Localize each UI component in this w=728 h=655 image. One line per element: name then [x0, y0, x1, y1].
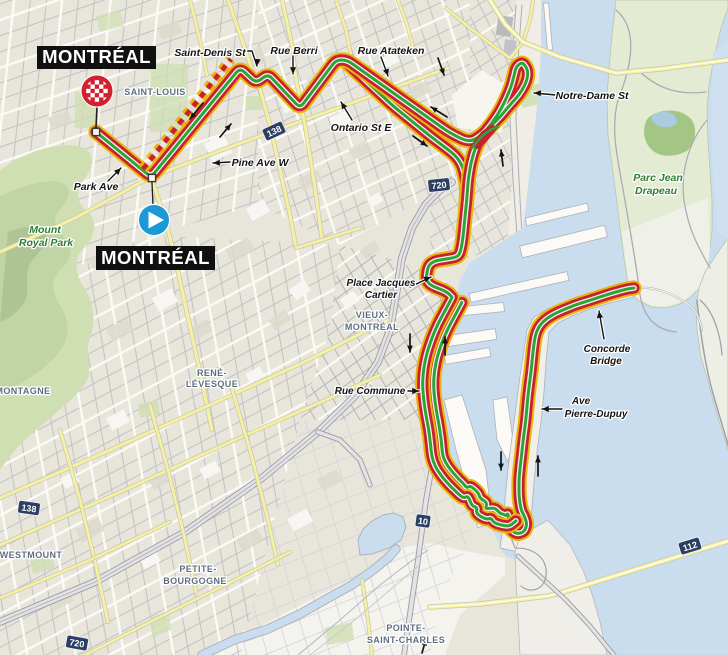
- svg-text:BOURGOGNE: BOURGOGNE: [163, 576, 227, 586]
- svg-text:SAINT-CHARLES: SAINT-CHARLES: [367, 635, 445, 645]
- svg-text:Concorde: Concorde: [584, 344, 631, 355]
- svg-text:Drapeau: Drapeau: [635, 185, 678, 197]
- svg-text:Rue Berri: Rue Berri: [270, 45, 318, 57]
- svg-text:MONTRÉAL: MONTRÉAL: [345, 322, 399, 332]
- svg-text:Notre-Dame St: Notre-Dame St: [556, 90, 629, 102]
- svg-text:Cartier: Cartier: [365, 290, 398, 301]
- svg-text:Rue Commune: Rue Commune: [335, 386, 406, 397]
- svg-text:MONTAGNE: MONTAGNE: [0, 386, 51, 396]
- svg-text:Ontario St E: Ontario St E: [331, 122, 393, 134]
- svg-text:MONTRÉAL: MONTRÉAL: [42, 46, 151, 67]
- svg-text:138: 138: [21, 502, 37, 514]
- svg-text:WESTMOUNT: WESTMOUNT: [0, 550, 62, 560]
- svg-text:RENÉ-: RENÉ-: [197, 368, 227, 378]
- svg-text:LÉVESQUE: LÉVESQUE: [186, 379, 238, 389]
- svg-text:Royal Park: Royal Park: [19, 237, 74, 249]
- svg-text:VIEUX-: VIEUX-: [356, 310, 388, 320]
- svg-text:Saint-Denis St: Saint-Denis St: [174, 47, 246, 59]
- svg-text:Bridge: Bridge: [590, 356, 622, 367]
- svg-text:PETITE-: PETITE-: [179, 564, 216, 574]
- svg-text:Place Jacques: Place Jacques: [347, 278, 416, 289]
- svg-text:SAINT-LOUIS: SAINT-LOUIS: [124, 87, 185, 97]
- svg-text:POINTE-: POINTE-: [386, 623, 425, 633]
- svg-text:Pierre-Dupuy: Pierre-Dupuy: [565, 409, 628, 420]
- svg-text:Park Ave: Park Ave: [74, 181, 119, 193]
- svg-text:10: 10: [417, 516, 428, 527]
- svg-text:Pine Ave W: Pine Ave W: [232, 157, 290, 169]
- svg-text:Ave: Ave: [571, 396, 591, 407]
- svg-text:Parc Jean: Parc Jean: [633, 172, 683, 184]
- svg-text:Mount: Mount: [29, 224, 61, 236]
- svg-text:Rue Atateken: Rue Atateken: [358, 45, 425, 57]
- svg-text:720: 720: [431, 180, 447, 192]
- svg-text:MONTRÉAL: MONTRÉAL: [101, 247, 210, 268]
